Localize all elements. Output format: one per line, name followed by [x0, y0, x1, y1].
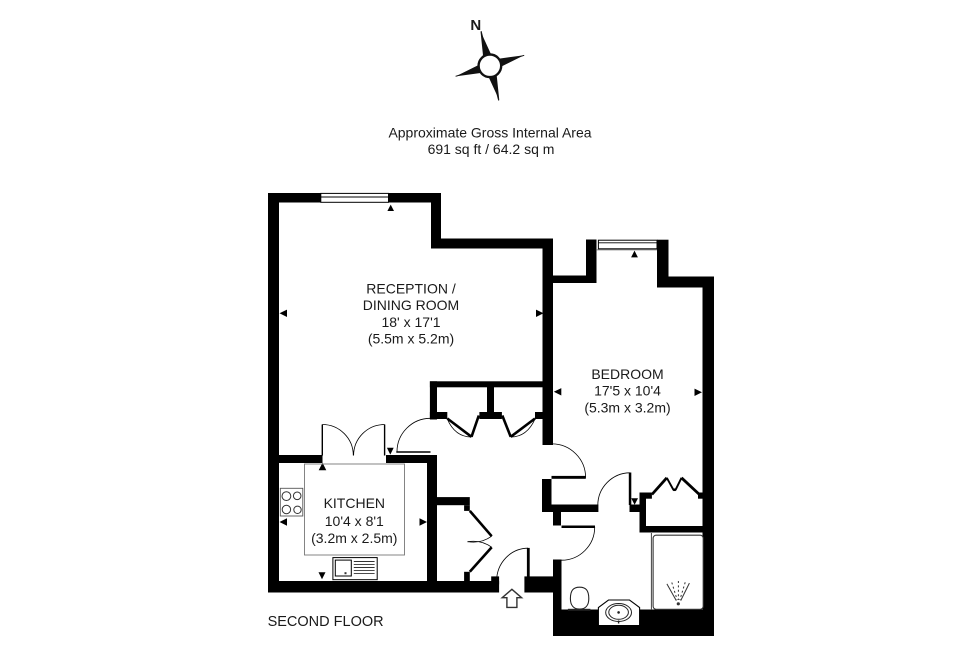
svg-text:RECEPTION /: RECEPTION /	[366, 281, 456, 297]
svg-text:N: N	[470, 17, 481, 34]
svg-text:KITCHEN: KITCHEN	[324, 495, 385, 511]
svg-text:18' x 17'1: 18' x 17'1	[381, 314, 440, 330]
svg-text:17'5 x 10'4: 17'5 x 10'4	[594, 383, 661, 399]
svg-text:DINING ROOM: DINING ROOM	[363, 297, 459, 313]
svg-text:10'4 x 8'1: 10'4 x 8'1	[325, 513, 384, 529]
svg-text:(5.3m x 3.2m): (5.3m x 3.2m)	[584, 399, 670, 415]
svg-text:(5.5m x 5.2m): (5.5m x 5.2m)	[368, 331, 454, 347]
svg-text:(3.2m x 2.5m): (3.2m x 2.5m)	[311, 530, 397, 546]
svg-text:691 sq ft / 64.2 sq m: 691 sq ft / 64.2 sq m	[428, 141, 555, 157]
svg-text:SECOND FLOOR: SECOND FLOOR	[268, 614, 384, 630]
svg-text:Approximate Gross Internal Are: Approximate Gross Internal Area	[388, 125, 591, 141]
svg-text:BEDROOM: BEDROOM	[591, 366, 663, 382]
